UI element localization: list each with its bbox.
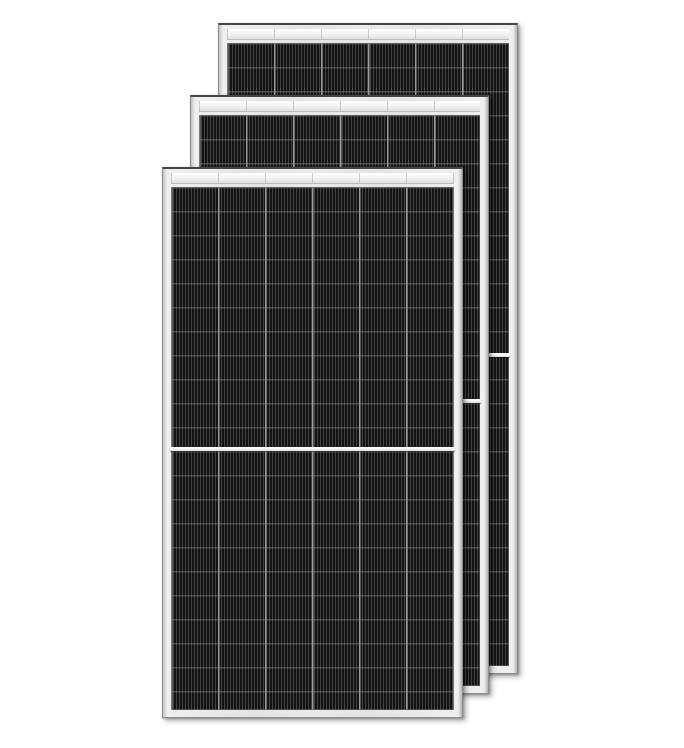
solar-panel-front	[162, 167, 463, 718]
panel-cell-grid	[171, 187, 454, 710]
product-image-stage	[0, 0, 684, 748]
panel-top-strip	[171, 173, 454, 184]
panel-top-strip	[227, 29, 509, 40]
panel-center-divider	[170, 447, 455, 451]
panel-top-strip	[199, 101, 480, 112]
